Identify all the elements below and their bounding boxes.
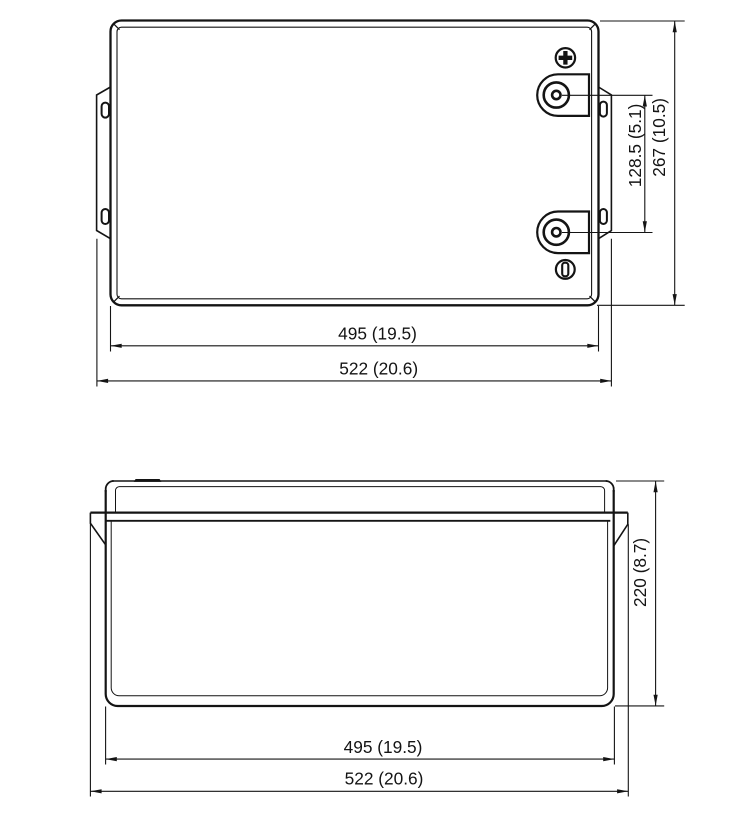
svg-text:495 (19.5): 495 (19.5): [344, 737, 423, 757]
svg-text:220 (8.7): 220 (8.7): [630, 538, 650, 607]
svg-text:495 (19.5): 495 (19.5): [338, 324, 417, 344]
svg-text:522 (20.6): 522 (20.6): [339, 359, 418, 379]
svg-text:522 (20.6): 522 (20.6): [345, 769, 424, 789]
svg-text:128.5 (5.1): 128.5 (5.1): [625, 104, 645, 188]
svg-text:267 (10.5): 267 (10.5): [649, 98, 669, 177]
